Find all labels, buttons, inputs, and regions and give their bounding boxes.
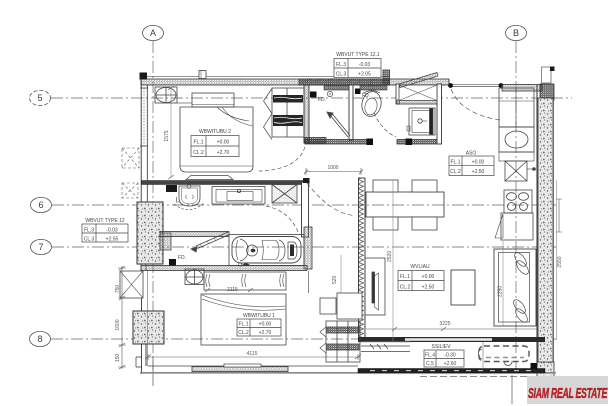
svg-text:FL.3: FL.3: [336, 62, 346, 68]
svg-text:B: B: [513, 28, 519, 38]
svg-text:WBWITUBU 2: WBWITUBU 2: [199, 129, 231, 135]
svg-text:+2.55: +2.55: [106, 237, 119, 243]
svg-text:150: 150: [115, 354, 121, 363]
svg-text:WVLIAU: WVLIAU: [410, 264, 430, 270]
svg-text:8: 8: [37, 334, 42, 344]
svg-text:+2.50: +2.50: [472, 169, 485, 175]
svg-text:+2.05: +2.05: [358, 72, 371, 78]
svg-text:WBWITUBU 1: WBWITUBU 1: [243, 313, 275, 319]
svg-text:SSILIEV: SSILIEV: [432, 344, 452, 350]
svg-text:FD.: FD.: [178, 255, 186, 261]
svg-text:-0.30: -0.30: [444, 353, 456, 359]
svg-text:CL.2: CL.2: [400, 285, 411, 291]
svg-text:1600: 1600: [115, 319, 121, 330]
svg-text:+0.00: +0.00: [259, 322, 272, 328]
svg-text:520: 520: [332, 275, 338, 284]
svg-text:5: 5: [37, 93, 42, 103]
svg-text:+0.00: +0.00: [422, 274, 435, 280]
svg-text:1575: 1575: [164, 130, 170, 141]
svg-text:FL.1: FL.1: [238, 322, 248, 328]
svg-text:WBVUT TYPE 12.1: WBVUT TYPE 12.1: [336, 52, 380, 58]
svg-text:CL.2: CL.2: [193, 150, 204, 156]
svg-text:FL.1: FL.1: [400, 274, 410, 280]
svg-text:FL.4: FL.4: [425, 353, 435, 359]
svg-text:3225: 3225: [439, 321, 450, 327]
svg-text:+2.70: +2.70: [217, 150, 230, 156]
svg-text:2520: 2520: [387, 251, 393, 262]
svg-text:+2.50: +2.50: [422, 285, 435, 291]
svg-text:CL.3: CL.3: [336, 72, 347, 78]
svg-text:7: 7: [38, 242, 43, 252]
svg-text:6: 6: [38, 200, 43, 210]
svg-text:ASO: ASO: [466, 151, 477, 157]
svg-text:CL.2: CL.2: [238, 330, 249, 336]
svg-text:+0.00: +0.00: [217, 140, 230, 146]
svg-text:FL.1: FL.1: [450, 160, 460, 166]
svg-text:SIAM REAL ESTATE: SIAM REAL ESTATE: [528, 386, 608, 402]
svg-text:+0.00: +0.00: [472, 160, 485, 166]
svg-text:2250: 2250: [498, 286, 504, 297]
svg-text:FD.: FD.: [318, 97, 326, 103]
svg-text:C.5: C.5: [426, 361, 434, 367]
svg-text:-0.03: -0.03: [106, 228, 118, 234]
svg-text:4115: 4115: [247, 351, 258, 357]
svg-text:1000: 1000: [327, 165, 338, 171]
svg-text:2115: 2115: [227, 287, 238, 293]
svg-text:750: 750: [115, 285, 121, 294]
svg-text:+2.70: +2.70: [259, 330, 272, 336]
svg-text:+2.60: +2.60: [444, 361, 457, 367]
svg-text:2550: 2550: [557, 256, 563, 267]
svg-text:CL.2: CL.2: [450, 169, 461, 175]
svg-text:CL.3: CL.3: [84, 237, 95, 243]
svg-text:FL.3: FL.3: [84, 228, 94, 234]
svg-text:-0.03: -0.03: [359, 62, 371, 68]
svg-text:FL.1: FL.1: [193, 140, 203, 146]
svg-text:WBVUT TYPE 12: WBVUT TYPE 12: [85, 218, 124, 224]
svg-text:A: A: [150, 28, 156, 38]
